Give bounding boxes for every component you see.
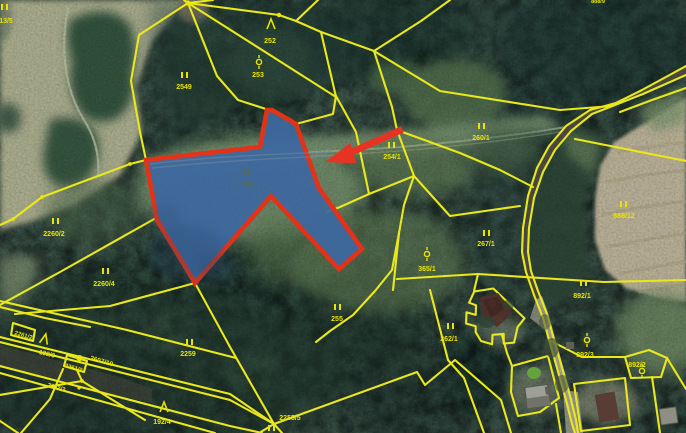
svg-text:260/1: 260/1 (472, 135, 490, 142)
svg-text:2255/5: 2255/5 (279, 415, 301, 422)
svg-text:13/5: 13/5 (0, 18, 13, 25)
svg-text:2544: 2544 (238, 181, 254, 188)
svg-text:253: 253 (252, 72, 264, 79)
svg-text:892/3: 892/3 (576, 352, 594, 359)
svg-text:365/1: 365/1 (418, 266, 436, 273)
svg-text:2260/2: 2260/2 (43, 231, 65, 238)
svg-text:2260/4: 2260/4 (93, 281, 115, 288)
svg-text:267/1: 267/1 (477, 241, 495, 248)
svg-text:888/12: 888/12 (613, 213, 635, 220)
svg-text:252: 252 (264, 38, 276, 45)
svg-text:192/4: 192/4 (153, 419, 171, 426)
svg-text:254/1: 254/1 (383, 154, 401, 161)
svg-text:2259: 2259 (180, 351, 196, 358)
svg-text:888/9: 888/9 (591, 0, 605, 5)
svg-text:892/1: 892/1 (573, 293, 591, 300)
svg-text:255: 255 (331, 316, 343, 323)
svg-text:2549: 2549 (176, 84, 192, 91)
svg-text:262/1: 262/1 (440, 336, 458, 343)
